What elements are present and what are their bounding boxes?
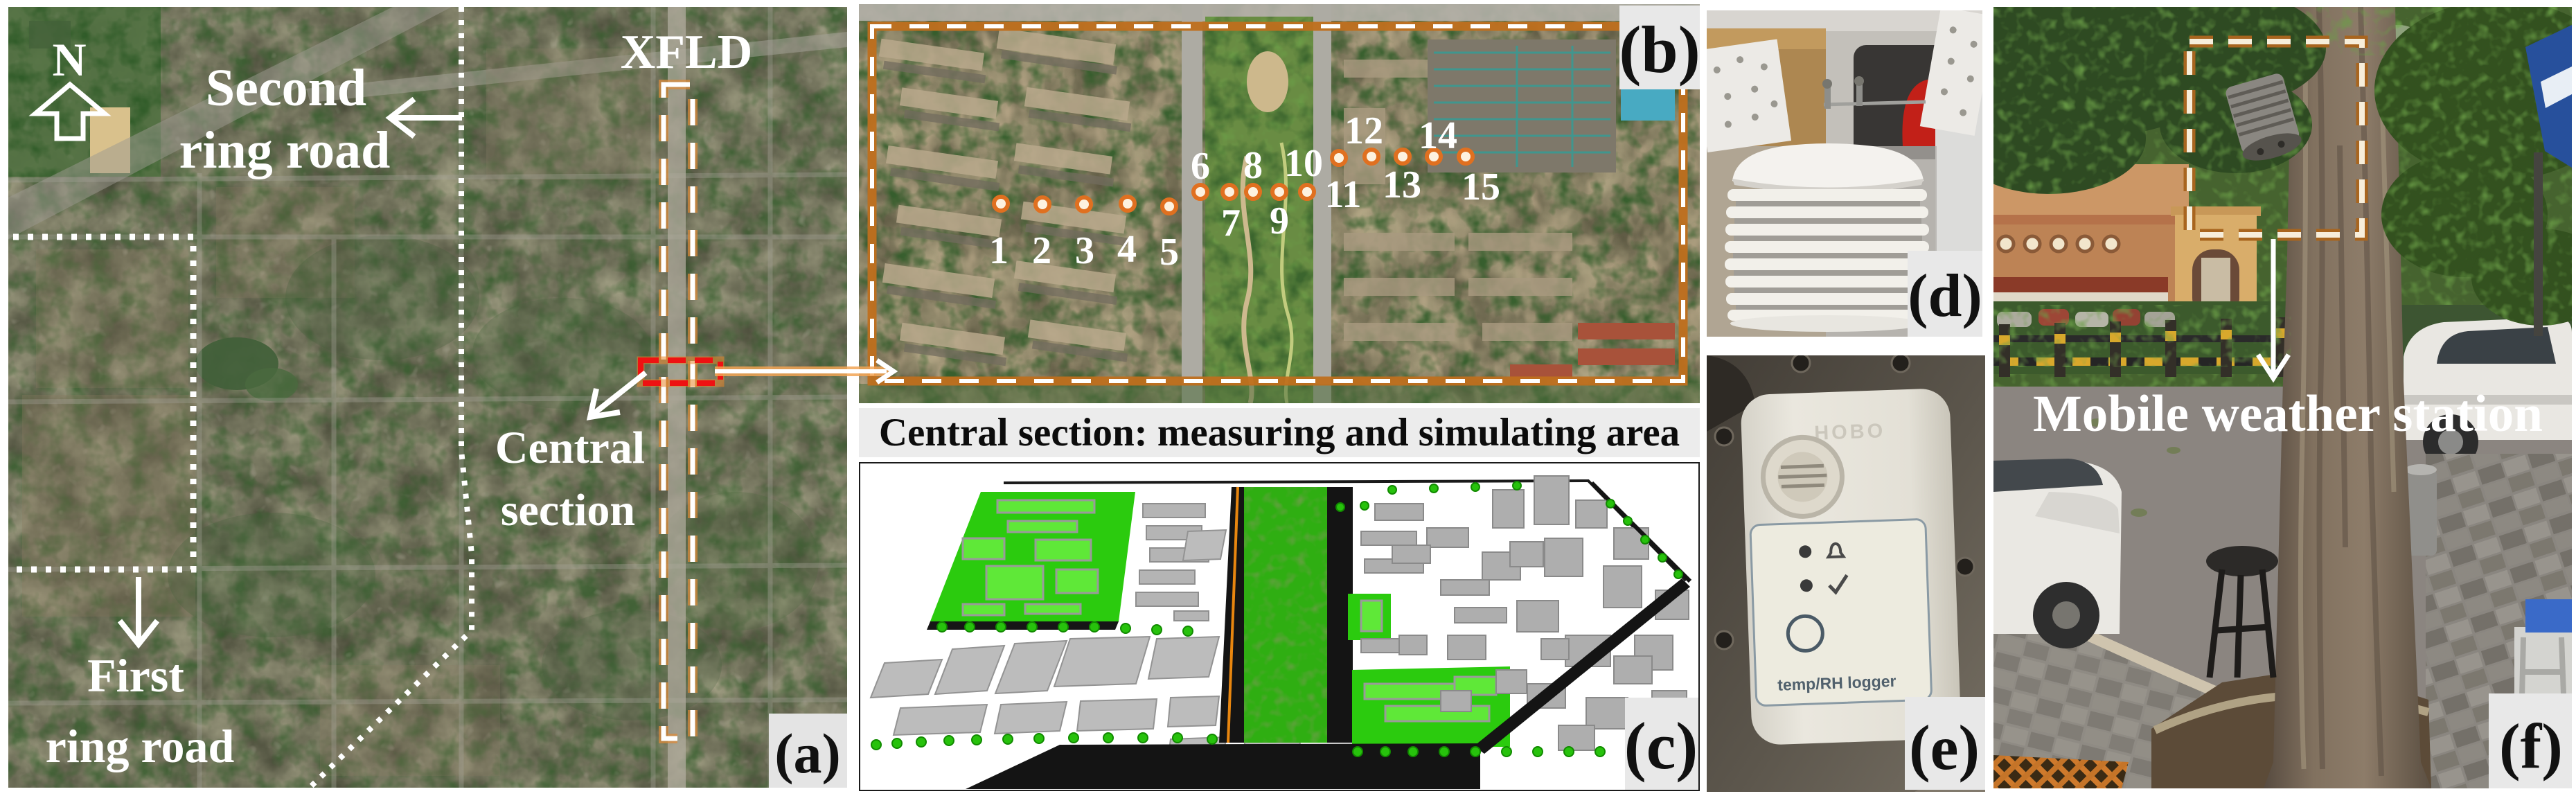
svg-text:(d): (d) — [1908, 263, 1982, 330]
svg-text:ring road: ring road — [179, 121, 391, 179]
svg-text:14: 14 — [1419, 114, 1457, 157]
svg-text:N: N — [52, 33, 86, 86]
svg-text:11: 11 — [1325, 173, 1362, 216]
svg-text:3: 3 — [1075, 229, 1094, 272]
svg-text:12: 12 — [1344, 109, 1383, 152]
svg-text:Mobile weather station: Mobile weather station — [2033, 385, 2543, 443]
svg-text:9: 9 — [1270, 200, 1289, 242]
svg-text:10: 10 — [1284, 142, 1323, 185]
svg-text:13: 13 — [1383, 163, 1421, 206]
svg-text:6: 6 — [1191, 145, 1210, 188]
svg-text:First: First — [87, 649, 184, 702]
svg-text:(f): (f) — [2499, 711, 2563, 781]
svg-text:HOBO: HOBO — [1814, 420, 1886, 445]
svg-text:Central: Central — [495, 423, 645, 473]
svg-text:4: 4 — [1117, 228, 1137, 271]
svg-text:(b): (b) — [1619, 12, 1700, 87]
svg-text:15: 15 — [1462, 166, 1500, 209]
svg-text:XFLD: XFLD — [621, 26, 753, 79]
svg-text:2: 2 — [1032, 229, 1051, 272]
svg-text:5: 5 — [1160, 231, 1179, 274]
svg-text:7: 7 — [1221, 202, 1241, 245]
svg-text:(a): (a) — [774, 722, 841, 785]
svg-text:Second: Second — [206, 59, 366, 117]
svg-text:ring road: ring road — [46, 720, 235, 772]
svg-text:1: 1 — [989, 229, 1009, 272]
svg-text:section: section — [501, 485, 635, 536]
svg-text:(c): (c) — [1624, 709, 1698, 783]
svg-text:(e): (e) — [1909, 712, 1980, 783]
svg-text:8: 8 — [1243, 144, 1263, 187]
